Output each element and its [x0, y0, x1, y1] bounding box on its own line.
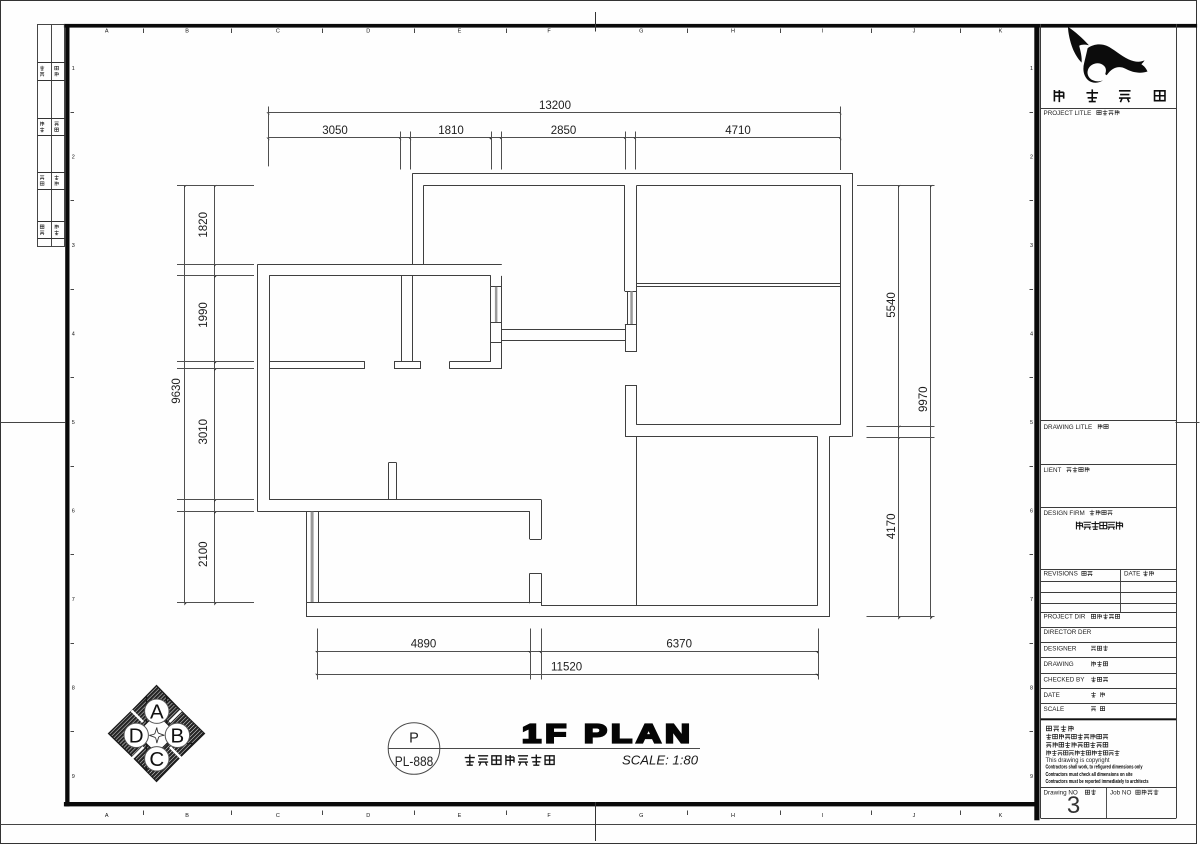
- svg-text:3: 3: [72, 243, 75, 249]
- svg-text:8: 8: [1030, 686, 1033, 692]
- svg-text:9: 9: [72, 774, 75, 780]
- svg-text:7: 7: [1030, 597, 1033, 603]
- svg-text:6370: 6370: [666, 639, 692, 651]
- svg-text:PL-888: PL-888: [395, 754, 434, 769]
- svg-text:REVISIONS: REVISIONS: [1044, 571, 1078, 578]
- svg-text:J: J: [913, 813, 916, 819]
- svg-text:2100: 2100: [198, 541, 210, 567]
- svg-text:1810: 1810: [438, 125, 464, 137]
- svg-text:P: P: [409, 731, 419, 747]
- svg-text:11520: 11520: [551, 662, 582, 674]
- svg-text:3010: 3010: [198, 419, 210, 445]
- svg-text:D: D: [366, 29, 370, 35]
- svg-text:2: 2: [1030, 155, 1033, 161]
- svg-text:This drawing is copyright: This drawing is copyright: [1046, 757, 1110, 764]
- svg-text:J: J: [913, 29, 916, 35]
- svg-text:4170: 4170: [886, 514, 898, 540]
- svg-text:DIRECTOR DER: DIRECTOR DER: [1044, 629, 1092, 636]
- svg-text:4710: 4710: [725, 125, 751, 137]
- svg-text:1990: 1990: [198, 302, 210, 328]
- svg-text:3050: 3050: [322, 125, 348, 137]
- svg-text:1820: 1820: [198, 212, 210, 238]
- svg-text:6: 6: [72, 509, 75, 515]
- svg-text:A: A: [105, 813, 109, 819]
- svg-text:Contractors must check all dim: Contractors must check all dimensions on…: [1046, 772, 1133, 778]
- svg-text:5: 5: [72, 420, 75, 426]
- svg-text:C: C: [276, 29, 280, 35]
- svg-text:3: 3: [1067, 792, 1080, 819]
- svg-text:H: H: [731, 813, 735, 819]
- svg-text:CHECKED BY: CHECKED BY: [1044, 677, 1086, 684]
- svg-text:2: 2: [72, 155, 75, 161]
- svg-text:LIENT: LIENT: [1044, 467, 1062, 474]
- svg-text:9970: 9970: [918, 386, 930, 412]
- svg-text:K: K: [999, 29, 1003, 35]
- svg-text:6: 6: [1030, 509, 1033, 515]
- svg-text:DESIGN FIRM: DESIGN FIRM: [1044, 510, 1085, 517]
- svg-text:DRAWING LITLE: DRAWING LITLE: [1044, 424, 1093, 431]
- svg-text:SCALE: 1:80: SCALE: 1:80: [622, 754, 698, 768]
- svg-text:4890: 4890: [411, 639, 437, 651]
- svg-text:DATE: DATE: [1044, 692, 1060, 699]
- svg-text:1: 1: [1030, 66, 1033, 72]
- svg-text:5: 5: [1030, 420, 1033, 426]
- svg-text:B: B: [185, 813, 189, 819]
- svg-text:DESIGNER: DESIGNER: [1044, 645, 1077, 652]
- svg-text:G: G: [639, 813, 643, 819]
- svg-text:E: E: [458, 813, 462, 819]
- svg-text:H: H: [731, 29, 735, 35]
- svg-text:PROJECT LITLE: PROJECT LITLE: [1044, 110, 1092, 117]
- svg-text:4: 4: [1030, 332, 1033, 338]
- svg-text:7: 7: [72, 597, 75, 603]
- svg-text:Contractors shall work, to ref: Contractors shall work, to refigured dim…: [1046, 765, 1144, 771]
- svg-text:13200: 13200: [539, 100, 571, 112]
- svg-text:D: D: [366, 813, 370, 819]
- svg-text:B: B: [171, 725, 185, 748]
- svg-text:1: 1: [72, 66, 75, 72]
- svg-text:Contractors must be reported i: Contractors must be reported immediately…: [1046, 779, 1149, 785]
- svg-text:A: A: [150, 701, 164, 724]
- svg-text:B: B: [185, 29, 189, 35]
- svg-text:PROJECT DIR: PROJECT DIR: [1044, 614, 1086, 621]
- svg-text:E: E: [458, 29, 462, 35]
- svg-text:SCALE: SCALE: [1044, 706, 1065, 713]
- svg-text:K: K: [999, 813, 1003, 819]
- svg-text:C: C: [276, 813, 280, 819]
- svg-text:8: 8: [72, 686, 75, 692]
- svg-text:9: 9: [1030, 774, 1033, 780]
- svg-text:Job NO: Job NO: [1110, 789, 1131, 796]
- svg-text:DRAWING: DRAWING: [1044, 661, 1074, 668]
- svg-text:3: 3: [1030, 243, 1033, 249]
- svg-text:2850: 2850: [551, 125, 577, 137]
- svg-text:C: C: [149, 748, 164, 771]
- svg-text:4: 4: [72, 332, 75, 338]
- svg-text:5540: 5540: [886, 292, 898, 318]
- svg-text:D: D: [129, 725, 144, 748]
- svg-text:A: A: [105, 29, 109, 35]
- svg-text:G: G: [639, 29, 643, 35]
- svg-text:9630: 9630: [171, 378, 183, 404]
- svg-text:DATE: DATE: [1124, 571, 1140, 578]
- svg-text:1F PLAN: 1F PLAN: [522, 720, 694, 748]
